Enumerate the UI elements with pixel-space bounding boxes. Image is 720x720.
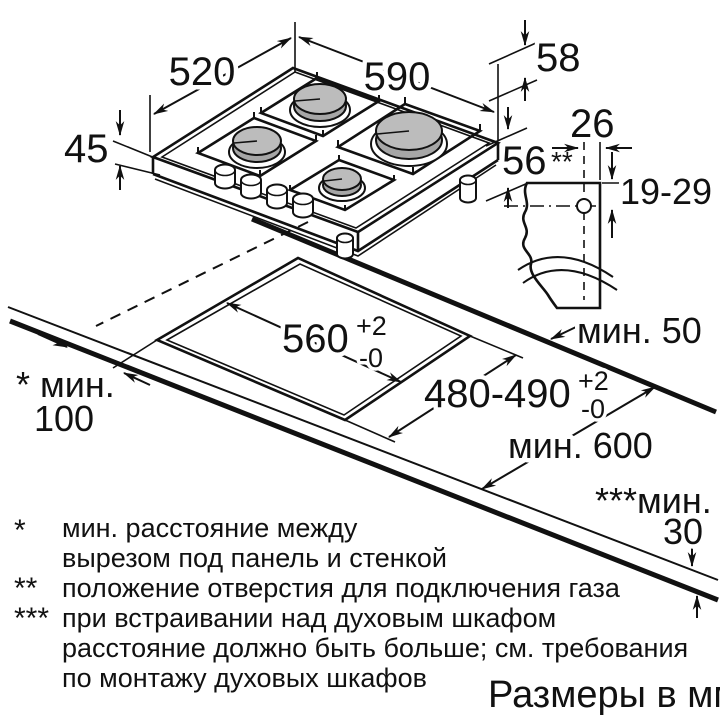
dim-arrow-min50 (551, 327, 576, 339)
footnote-marker-1: * (14, 514, 26, 547)
label-560-tol-lower: -0 (359, 343, 383, 373)
footnote-marker-2: ** (14, 572, 38, 605)
footnote-1-line-1: мин. расстояние между (62, 513, 358, 543)
footnote-1-line-2: вырезом под панель и стенкой (62, 543, 447, 573)
label-480-tol-lower: -0 (581, 394, 605, 424)
burner-right-large (371, 112, 447, 166)
burner-back (290, 84, 350, 127)
knob-3 (267, 185, 287, 209)
label-480-490: 480-490 (424, 372, 571, 416)
knob-1 (215, 165, 235, 189)
footnote-3-line-1: при встраивании над духовым шкафом (62, 603, 556, 633)
label-min30-value: 30 (663, 511, 703, 552)
label-520: 520 (169, 50, 236, 94)
ref-lines-58 (489, 43, 537, 101)
label-min100-value: 100 (34, 398, 94, 439)
footnotes: * мин. расстояние между вырезом под пане… (14, 513, 688, 693)
knob-4 (293, 194, 313, 218)
hob (153, 68, 498, 259)
footnote-2-line-1: положение отверстия для подключения газа (62, 573, 621, 603)
label-min600: мин. 600 (508, 425, 653, 466)
label-gas-marker: ** (551, 146, 573, 177)
label-26: 26 (570, 102, 615, 146)
label-min50: мин. 50 (577, 310, 702, 351)
footnote-3-line-3: по монтажу духовых шкафов (62, 663, 427, 693)
label-58: 58 (536, 36, 581, 80)
label-560: 560 (282, 317, 349, 361)
gas-hole (577, 199, 591, 213)
label-56: 56 (502, 139, 547, 183)
burner-front-small (319, 168, 365, 201)
label-19-29: 19-29 (620, 171, 712, 212)
label-480-tol-upper: +2 (578, 366, 609, 396)
label-560-tol-upper: +2 (356, 311, 387, 341)
burner-left (229, 127, 285, 168)
footnote-marker-3: *** (14, 602, 49, 635)
hob-foot-right (460, 176, 476, 203)
units-note: Размеры в мм (488, 674, 720, 716)
installation-diagram: 520 590 58 45 56 26 ** 19-29 560 +2 -0 4… (0, 0, 720, 720)
label-590: 590 (364, 55, 431, 99)
knob-2 (241, 175, 261, 199)
cutout-extension-left (113, 340, 157, 368)
diagram-canvas: 520 590 58 45 56 26 ** 19-29 560 +2 -0 4… (0, 0, 720, 720)
footnote-3-line-2: расстояние должно быть больше; см. требо… (62, 633, 688, 663)
label-45: 45 (64, 127, 109, 171)
hob-foot-front (337, 234, 353, 259)
